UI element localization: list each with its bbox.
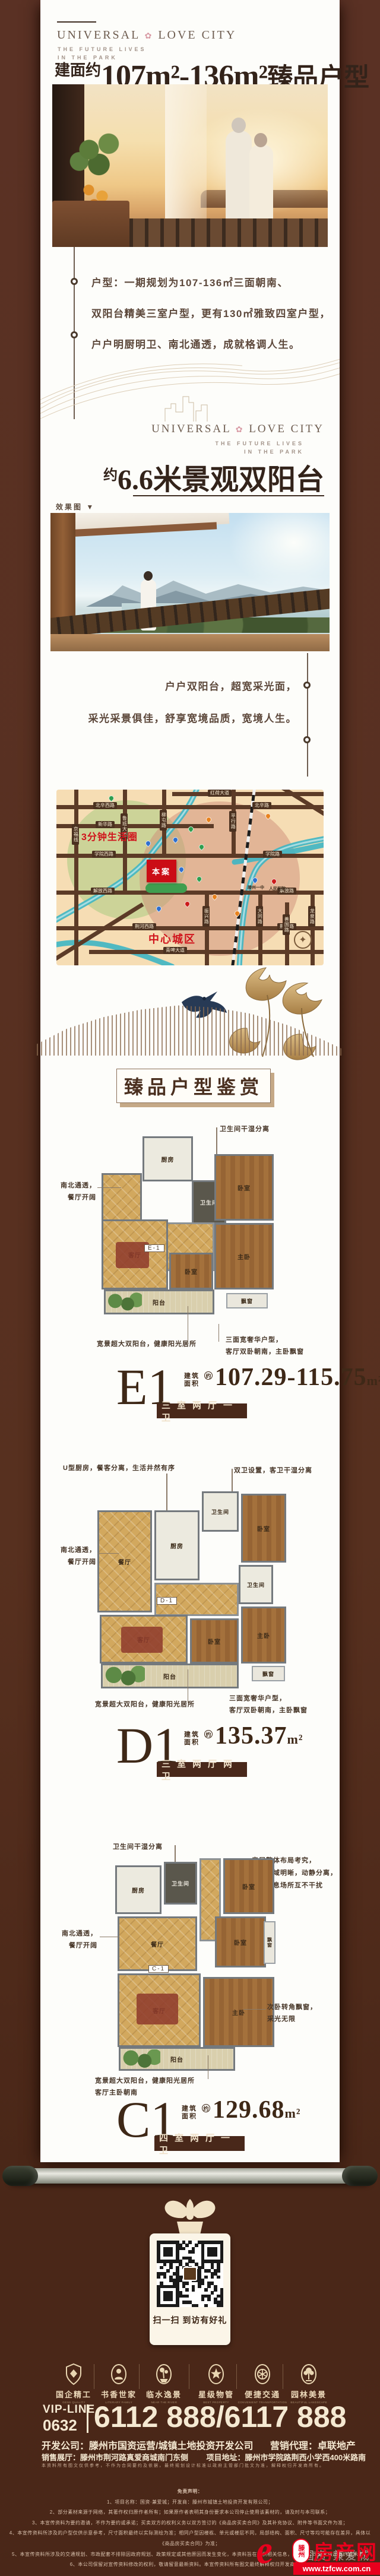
project-address: 项目地址：滕州市学院路荆西小学西400米路南 bbox=[206, 2453, 366, 2462]
figure-man-head bbox=[232, 118, 246, 133]
render-tag-2: 效果图 ▼ bbox=[56, 502, 95, 512]
triangle-down-icon: ▼ bbox=[86, 503, 95, 511]
property-poster: UNIVERSAL ✿ LOVE CITY THE FUTURE LIVES I… bbox=[0, 0, 380, 2576]
bay-window: 飘窗 bbox=[252, 1666, 285, 1681]
divider bbox=[189, 2364, 189, 2389]
bullet-text: 双阳台精美三室户型，更有130㎡雅致四室户型， bbox=[91, 305, 331, 320]
road-label: 学院路 bbox=[263, 851, 282, 858]
floorplan-c1[interactable]: 厨房 卫生间 卧室 卧室 飘窗 餐厅 客厅 主卧 阳台 C-1 bbox=[110, 1851, 278, 2072]
approx-circle: 约 bbox=[204, 1371, 213, 1380]
floorplan-e1[interactable]: 厨房 餐厅 卫生间 卧室 主卧 卧室 客厅 阳台 飘窗 E-1 bbox=[98, 1136, 276, 1324]
balcony-plants bbox=[121, 2049, 160, 2068]
decor-rule bbox=[57, 21, 96, 23]
sun-glow bbox=[229, 513, 330, 590]
leader-line bbox=[100, 1937, 119, 1937]
room-bedroom: 卧室 bbox=[241, 1494, 286, 1563]
divider bbox=[87, 2404, 88, 2433]
plan-annotation: 卫生间干湿分离 bbox=[220, 1124, 270, 1136]
brand-lockup-2: UNIVERSAL ✿ LOVE CITY bbox=[151, 423, 324, 436]
road-label: 振兴路 bbox=[202, 906, 210, 927]
section2-title: 约6.6米景观双阳台 bbox=[103, 456, 324, 498]
qr-center-logo bbox=[183, 2267, 197, 2281]
gallery-title-box: 臻品户型鉴赏 bbox=[116, 1069, 271, 1103]
park-green bbox=[145, 883, 187, 893]
disclaimer-title: 免责声明： bbox=[6, 2486, 374, 2497]
star-icon bbox=[206, 2362, 226, 2387]
feature-literary-family: 书香世家LITERARY FAMILY bbox=[96, 2362, 141, 2404]
flower-icon: ✿ bbox=[236, 426, 245, 435]
timeline-dot bbox=[71, 278, 78, 285]
timeline-dot bbox=[303, 682, 311, 689]
approx-circle: 约 bbox=[204, 1730, 213, 1738]
room-master: 主卧 bbox=[214, 1223, 274, 1289]
feature-soe-quality: 国企精工GENS QUALITY bbox=[51, 2362, 96, 2404]
road-label: 北辛西路 bbox=[93, 802, 117, 809]
flower-icon: ✿ bbox=[145, 32, 154, 41]
road-label: 解放西路 bbox=[91, 888, 115, 895]
living-rug bbox=[121, 1627, 163, 1653]
scroll-roller-cap-right bbox=[342, 2166, 378, 2186]
center-city-label: 中心城区 bbox=[148, 931, 196, 946]
area-prefix: 建筑 面积 bbox=[184, 1731, 199, 1747]
shield-icon bbox=[64, 2362, 84, 2387]
plan-annotation: 宽景超大双阳台，健康阳光居所 bbox=[95, 1699, 195, 1711]
approx-circle: 约 bbox=[202, 2104, 210, 2112]
bay-window: 飘窗 bbox=[226, 1293, 268, 1308]
road-label: 善国路 bbox=[283, 914, 290, 935]
bonsai-tree-icon bbox=[154, 2362, 174, 2387]
room-bedroom2: 卧室 bbox=[169, 1253, 213, 1289]
road-label: 北辛路 bbox=[252, 802, 271, 809]
vip-area-code: 0632 bbox=[43, 2416, 77, 2435]
room-master: 主卧 bbox=[203, 1977, 274, 2047]
gallery-title: 臻品户型鉴赏 bbox=[124, 1072, 263, 1100]
room-kitchen: 厨房 bbox=[115, 1865, 161, 1914]
tree-icon bbox=[299, 2362, 319, 2387]
brand-tagline-1: THE FUTURE LIVES bbox=[215, 441, 304, 446]
feature-transport: 便捷交通CONVENIENT TRANSPORTATION bbox=[240, 2362, 285, 2404]
road-label: 京福线 bbox=[72, 824, 79, 845]
brand-tagline-1: THE FUTURE LIVES bbox=[58, 46, 147, 52]
room-bedroom2: 卧室 bbox=[190, 1618, 239, 1664]
title-prefix: 建面约 bbox=[55, 61, 101, 79]
plan-tag: C-1 bbox=[148, 1965, 169, 1973]
figure-woman-head bbox=[254, 133, 267, 147]
hero-photo-1 bbox=[52, 84, 328, 247]
scroll-panel: UNIVERSAL ✿ LOVE CITY THE FUTURE LIVES I… bbox=[40, 0, 340, 2162]
timeline-dot bbox=[303, 736, 311, 743]
divider bbox=[283, 2364, 283, 2389]
brand-lockup: UNIVERSAL ✿ LOVE CITY bbox=[57, 28, 236, 42]
plan-tag: D-1 bbox=[157, 1597, 177, 1605]
figure-head bbox=[144, 571, 153, 581]
room-dining: 餐厅 bbox=[118, 1916, 197, 1971]
room-bath1: 卫生间 bbox=[202, 1491, 239, 1532]
plan-area: 129.68m² bbox=[213, 2096, 300, 2124]
plan-area: 135.37m² bbox=[215, 1722, 303, 1750]
road-label: 荆河西路 bbox=[132, 923, 156, 930]
area-prefix: 建筑 面积 bbox=[184, 1373, 199, 1388]
leader-line bbox=[208, 2055, 208, 2079]
cabinet-silhouette bbox=[52, 201, 129, 247]
road bbox=[172, 792, 324, 796]
location-map[interactable]: 红荷大道 北辛西路 北辛路 新华路 学院西路 学院路 解放西路 解放路 荆河西路… bbox=[56, 790, 324, 965]
room-bath2: 卫生间 bbox=[239, 1565, 273, 1604]
plan-annotation: U型厨房，餐客分离，生活井然有序 bbox=[63, 1463, 175, 1475]
floorplan-d1[interactable]: 餐厅 厨房 卫生间 卧室 卫生间 客厅 卧室 主卧 阳台 飘窗 D-1 bbox=[93, 1484, 289, 1691]
road-label: 青啤大道 bbox=[163, 947, 187, 954]
divider bbox=[236, 2364, 237, 2389]
room-dining: 餐厅 bbox=[97, 1510, 152, 1612]
bullet-text: 户户双阳台，超宽采光面， bbox=[165, 678, 297, 693]
wheel-icon bbox=[252, 2362, 273, 2387]
plan-annotation: 次卧转角飘窗，采光无限 bbox=[267, 2002, 332, 2026]
logo-url-bar[interactable]: www.tzfcw.com.cn bbox=[293, 2562, 380, 2575]
plan-area: 107.29-115.75m² bbox=[215, 1363, 380, 1392]
balcony-rail bbox=[129, 218, 328, 247]
brand-right: LOVE CITY bbox=[158, 28, 236, 42]
life-circle-label: 3分钟生活圈 bbox=[81, 829, 138, 843]
vip-phone-numbers[interactable]: 6112 888/6117 888 bbox=[94, 2400, 346, 2434]
poi-label: 滕州一中 bbox=[248, 885, 264, 891]
room-kitchen: 厨房 bbox=[154, 1510, 199, 1580]
road-label: 柳屯路 bbox=[160, 810, 167, 831]
room-kitchen: 厨房 bbox=[142, 1136, 193, 1181]
plan-type-badge: 四室两厅一卫 bbox=[154, 2136, 245, 2151]
fine-print: 本资料所有图文仅供参考，不作为合同要约及依据，最终规划设计标准以政府主管部门批文… bbox=[42, 2463, 338, 2469]
road bbox=[258, 891, 262, 965]
plan-annotation: 三面宽奢华户型，客厅双卧朝南，主卧飘窗 bbox=[229, 1693, 336, 1717]
room-bath: 卫生间 bbox=[164, 1862, 197, 1905]
plan-annotation: 双卫设置，客卫干湿分离 bbox=[234, 1465, 312, 1477]
living-rug bbox=[137, 1994, 178, 2024]
road-label: 大同路 bbox=[256, 906, 263, 927]
leader-line bbox=[188, 1669, 188, 1703]
disclaimer-item: 1、项目名称：国资·兼爱城；开发商：滕州市城镇土地投资开发有限公司； bbox=[6, 2497, 374, 2508]
bullet-text: 采光采景俱佳，舒享宽境品质，宽境人生。 bbox=[88, 710, 297, 725]
site-marker[interactable]: 本案 bbox=[147, 860, 176, 882]
logo-e: e bbox=[252, 2527, 276, 2574]
area-prefix: 建筑 面积 bbox=[182, 2105, 197, 2121]
scroll-roller-cap-left bbox=[2, 2166, 38, 2186]
room-bedroom: 卧室 bbox=[223, 1858, 274, 1914]
road bbox=[74, 790, 78, 965]
room-master: 主卧 bbox=[241, 1607, 286, 1664]
divider bbox=[139, 2364, 140, 2389]
watermark: 国资·兼爱城 e 滕州 房产网 www.tzfcw.com.cn bbox=[255, 2534, 380, 2576]
qr-caption: 扫一扫 到访有好礼 bbox=[150, 2314, 230, 2326]
leader-line bbox=[97, 1187, 121, 1188]
room-bedroom2: 卧室 bbox=[215, 1916, 266, 1967]
person-icon bbox=[109, 2362, 129, 2387]
leader-line bbox=[218, 1324, 219, 1342]
plan-type-badge: 三室两厅两卫 bbox=[157, 1762, 247, 1777]
road bbox=[205, 891, 209, 965]
bay-window: 飘窗 bbox=[264, 1921, 275, 1964]
road-label: 红荷大道 bbox=[208, 790, 232, 797]
leader-line bbox=[188, 1306, 188, 1342]
qr-card[interactable]: 扫一扫 到访有好礼 bbox=[150, 2233, 230, 2345]
plan-annotation: 南北通透，餐厅开阔 bbox=[51, 1545, 96, 1569]
leader-line bbox=[243, 2009, 266, 2010]
plan-annotation: 南北通透，餐厅开阔 bbox=[51, 1928, 97, 1952]
wave-decor bbox=[40, 355, 340, 425]
logo-name: 房产网 bbox=[313, 2536, 378, 2565]
brand-tagline-2: IN THE PARK bbox=[244, 449, 304, 455]
hero-photo-2 bbox=[50, 513, 330, 651]
scroll-roller-bar bbox=[8, 2168, 372, 2184]
logo-city: 滕州 bbox=[296, 2545, 306, 2558]
road bbox=[311, 891, 315, 965]
gift-bow-icon bbox=[159, 2197, 221, 2236]
balcony-plants bbox=[103, 1666, 145, 1686]
agent-line: 营销代理：卓联地产 bbox=[270, 2441, 356, 2451]
divider bbox=[94, 2364, 94, 2389]
plan-type-badge: 三室两厅一卫 bbox=[157, 1403, 247, 1418]
leader-line bbox=[97, 1553, 119, 1554]
room-bedroom: 卧室 bbox=[214, 1154, 274, 1221]
plan-annotation: 三面宽奢华户型，客厅双卧朝南，主卧飘窗 bbox=[226, 1335, 332, 1358]
road-label: 平行路 bbox=[229, 811, 236, 832]
plan-tag: E-1 bbox=[144, 1244, 164, 1252]
road-label: 龙泉路 bbox=[308, 906, 315, 927]
address-line: 销售展厅：滕州市荆河路真爱商城南门东侧 项目地址：滕州市学院路荆西小学西400米… bbox=[42, 2451, 374, 2463]
poi-label: 人民医院 bbox=[269, 886, 286, 892]
balcony-floor bbox=[50, 634, 330, 651]
timeline-line-2 bbox=[307, 653, 308, 777]
balcony-plants bbox=[106, 1292, 142, 1312]
feature-property: 星级物管BEST PROPERTY bbox=[194, 2362, 239, 2404]
developer-line: 开发公司：滕州市国资运营/城镇土地投资开发公司 营销代理：卓联地产 bbox=[42, 2438, 374, 2452]
brand-left: UNIVERSAL bbox=[57, 28, 140, 42]
bullet-text: 户户明厨明卫、南北通透，成就格调人生。 bbox=[91, 336, 300, 351]
road-label: 新华路 bbox=[96, 821, 115, 828]
timeline-dot bbox=[71, 331, 78, 338]
compass-icon: ✦ bbox=[294, 931, 312, 949]
disclaimer-item: 3、本宣传资料为要约邀请，不作为要约或承诺；买卖双方的权利义务以双方签订的《商品… bbox=[6, 2518, 374, 2529]
feature-garden: 园林美景BEAUTIFUL LANDSCAPE bbox=[286, 2362, 331, 2404]
disclaimer-item: 2、部分素材来源于网络，其著作权归原作者所有；如果原作者表明其身份要求本公司停止… bbox=[6, 2507, 374, 2518]
plan-annotation: 宽景超大双阳台，健康阳光居所 bbox=[97, 1339, 197, 1351]
logo-circle: 滕州 bbox=[292, 2539, 310, 2564]
feature-waterside: 临水逸景NEAR THE RIVER bbox=[141, 2362, 186, 2404]
road-label: 学院西路 bbox=[92, 851, 116, 858]
title-underline bbox=[133, 495, 324, 496]
plan-annotation: 南北通透，餐厅开阔 bbox=[51, 1180, 96, 1204]
bullet-text: 户型：一期规划为107-136㎡三面朝南、 bbox=[91, 274, 289, 289]
